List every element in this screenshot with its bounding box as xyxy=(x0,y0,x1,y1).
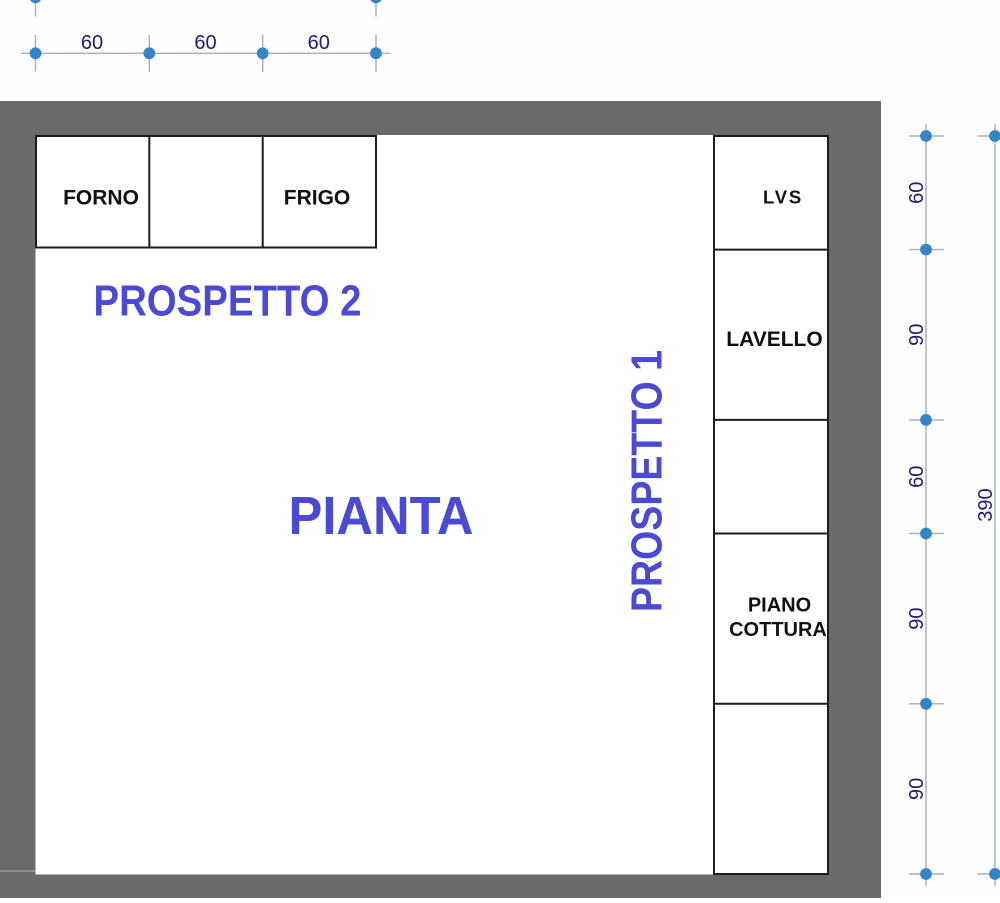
svg-text:60: 60 xyxy=(194,32,216,54)
svg-text:90: 90 xyxy=(906,324,928,346)
svg-text:90: 90 xyxy=(906,607,928,629)
svg-text:PROSPETTO 1: PROSPETTO 1 xyxy=(623,350,672,612)
svg-text:LVS: LVS xyxy=(763,187,803,208)
svg-text:60: 60 xyxy=(308,32,330,54)
svg-text:COTTURA: COTTURA xyxy=(729,619,827,641)
svg-text:60: 60 xyxy=(81,32,103,54)
svg-text:PIANTA: PIANTA xyxy=(289,486,474,546)
svg-text:60: 60 xyxy=(906,182,928,204)
svg-text:90: 90 xyxy=(906,778,928,800)
svg-text:390: 390 xyxy=(975,488,997,521)
svg-text:PROSPETTO 2: PROSPETTO 2 xyxy=(94,277,362,326)
svg-text:FRIGO: FRIGO xyxy=(284,187,351,210)
svg-text:FORNO: FORNO xyxy=(63,187,139,210)
svg-text:PIANO: PIANO xyxy=(748,595,811,617)
svg-text:LAVELLO: LAVELLO xyxy=(726,328,822,351)
svg-text:60: 60 xyxy=(906,466,928,488)
